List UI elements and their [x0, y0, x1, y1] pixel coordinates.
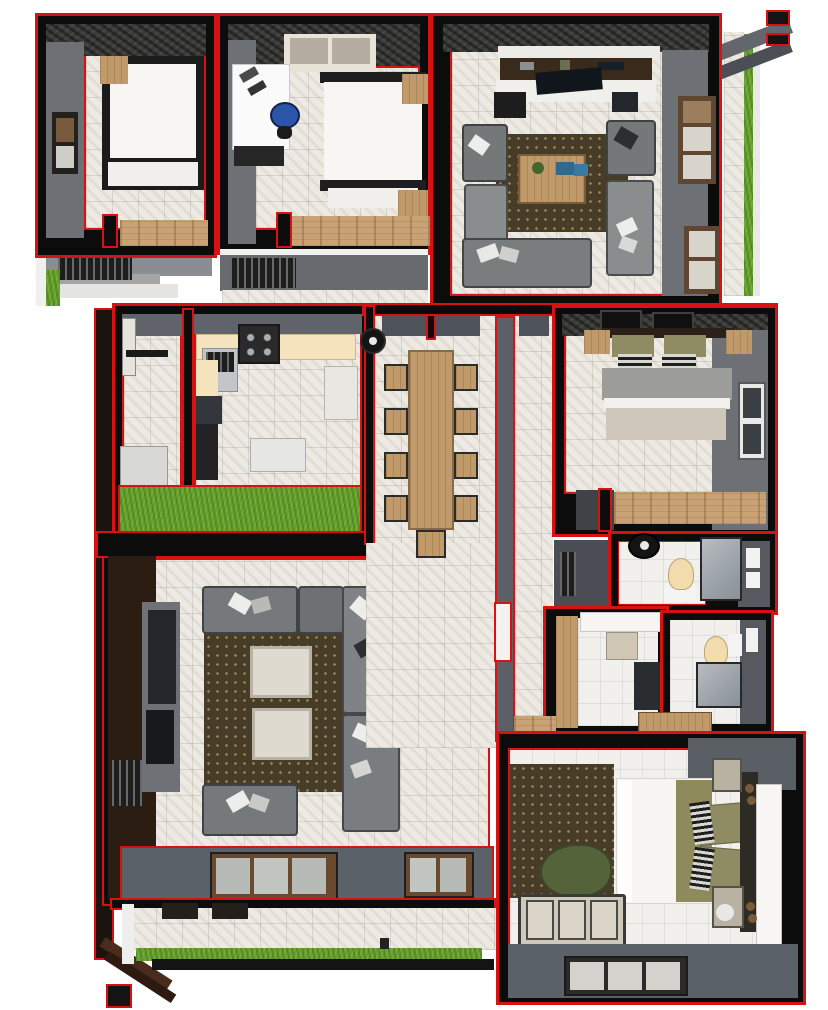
porch-post: [380, 938, 389, 949]
living-table: [252, 708, 312, 760]
tv-console-decor: [598, 62, 624, 70]
kitchen-island: [250, 438, 306, 472]
patio-window-pane: [292, 858, 326, 894]
bedroom1-door-jamb: [102, 214, 118, 248]
living-sofa-top: [202, 586, 298, 634]
family-window-pane: [683, 155, 711, 179]
closet-shelf: [580, 612, 666, 632]
closet-wood-panel: [556, 616, 578, 728]
bath-basin-center: [640, 541, 649, 550]
family-chaise: [464, 184, 508, 246]
living-sofa-corner: [298, 586, 344, 634]
bedroom2-window-pane: [332, 38, 370, 64]
master-sofa-cushion: [558, 900, 586, 940]
kitchen-counter-left: [196, 360, 218, 396]
living-top-wall: [96, 531, 372, 558]
pergola-beam-end: [766, 33, 790, 46]
dining-chair: [454, 364, 478, 391]
wardrobe-door-white: [756, 784, 782, 946]
family-window-pane: [683, 101, 711, 123]
kitchen-stove: [238, 324, 280, 364]
laundry-rail: [126, 350, 168, 357]
bed3-accent-pillow: [662, 354, 696, 369]
dining-chair-end: [416, 530, 446, 558]
family-coffee-table: [518, 154, 586, 204]
tv-console-decor: [520, 62, 534, 70]
bedroom3-window-pane: [743, 424, 761, 454]
dining-doorway-top: [436, 316, 480, 336]
bedroom2-door-threshold: [284, 216, 430, 246]
closet-cabinet: [606, 632, 638, 660]
dining-chair: [384, 452, 408, 479]
bedroom2-door-jamb: [276, 212, 292, 248]
patio-window-pane: [254, 858, 288, 894]
bedroom1-door-threshold: [120, 220, 208, 246]
living-tv-screen: [148, 610, 176, 704]
bed3-blanket-gray: [602, 368, 732, 400]
front-vent-window: [58, 258, 132, 280]
bed3-nightstand: [584, 330, 610, 354]
porch-walk-edge: [152, 959, 494, 970]
toilet-lid: [668, 558, 694, 590]
hallway-wall: [495, 316, 515, 742]
bed1-foot-sheet: [108, 162, 198, 186]
office-chair-base: [277, 126, 292, 139]
patio-window-pane: [440, 858, 466, 892]
porch-bench: [162, 903, 198, 919]
master-sofa-cushion: [526, 900, 554, 940]
wardrobe-knob: [747, 796, 756, 805]
tv-side-stool: [612, 92, 638, 112]
side-garden-strip: [744, 34, 753, 296]
floorplan-canvas: [0, 0, 828, 1010]
master-nightstand: [712, 758, 742, 792]
wall-clock-hub: [369, 337, 377, 345]
dining-chair: [384, 408, 408, 435]
wardrobe-knob: [745, 784, 754, 793]
coffee-table-books: [574, 164, 588, 176]
family-sofa: [462, 238, 592, 288]
hallway-door-opening: [494, 602, 512, 662]
shower-enclosure: [696, 662, 742, 708]
bedroom2-window-pane: [290, 38, 328, 64]
master-blanket-green: [540, 844, 612, 898]
fireplace: [146, 710, 174, 764]
bed2-nightstand: [402, 74, 428, 104]
bedroom1-window-pane: [56, 118, 74, 142]
family-window-pane: [689, 261, 715, 289]
corridor-vent-window: [230, 258, 296, 288]
family-armchair: [462, 124, 508, 182]
wardrobe-knob: [746, 902, 755, 911]
media-vents: [112, 760, 142, 806]
desk-base: [234, 146, 284, 166]
master-bed-fold: [618, 780, 632, 902]
kitchen-tall-cabinet: [324, 366, 358, 420]
dining-chair: [454, 408, 478, 435]
courtyard-grass: [118, 485, 362, 533]
bed2-bench: [398, 190, 428, 218]
entry-gate-post: [106, 984, 132, 1008]
bath-towel: [746, 628, 758, 652]
open-floor: [366, 543, 496, 748]
closet-vent: [560, 552, 576, 596]
porch-bench: [212, 903, 248, 919]
patio-window-pane: [410, 858, 436, 892]
master-window-pane: [608, 962, 642, 990]
bath-towel: [746, 572, 760, 588]
office-chair: [270, 102, 300, 129]
coffee-table-plant: [532, 162, 544, 174]
toilet-tank: [728, 634, 742, 656]
bedroom3-door-jamb: [598, 488, 612, 532]
front-wall-edge: [36, 256, 46, 306]
master-sofa-cushion: [590, 900, 618, 940]
nightstand-flower: [716, 904, 734, 921]
bath-towel: [746, 548, 760, 568]
wardrobe-knob: [748, 914, 757, 923]
laundry-door: [122, 318, 136, 376]
bedroom3-dresser: [614, 492, 766, 524]
master-window-pane: [570, 962, 604, 990]
doorway-jamb: [426, 314, 436, 340]
dining-table: [408, 350, 454, 530]
dining-chair: [454, 495, 478, 522]
bedroom1-window-pane: [56, 146, 74, 168]
bed1-nightstand: [100, 56, 128, 84]
side-walkway-outer-edge: [753, 32, 760, 296]
shower-enclosure: [700, 537, 742, 601]
front-step: [60, 284, 178, 298]
dining-chair: [384, 495, 408, 522]
master-window-pane: [646, 962, 680, 990]
dining-chair: [384, 364, 408, 391]
patio-window-pane: [216, 858, 250, 894]
living-table: [250, 646, 312, 698]
dining-doorway-top: [382, 316, 426, 336]
kitchen-cabinet-dark: [196, 396, 222, 424]
dining-chair: [454, 452, 478, 479]
hall-doorway-top: [519, 316, 549, 336]
family-window-pane: [689, 231, 715, 257]
coffee-table-books: [556, 162, 574, 175]
tv-console-decor: [560, 60, 570, 70]
bed3-nightstand: [726, 330, 752, 354]
pergola-beam-end: [766, 10, 790, 26]
tv-cabinet-dark: [494, 92, 526, 118]
kitchen-door-dark: [196, 424, 218, 480]
bedroom3-window-pane: [743, 388, 761, 418]
family-window-pane: [683, 127, 711, 151]
porch-left-wall: [122, 904, 134, 964]
living-sofa-bottom: [202, 784, 298, 836]
bed3-duvet: [606, 408, 726, 440]
roof-window: [600, 310, 642, 330]
bed3-accent-pillow: [618, 354, 652, 369]
